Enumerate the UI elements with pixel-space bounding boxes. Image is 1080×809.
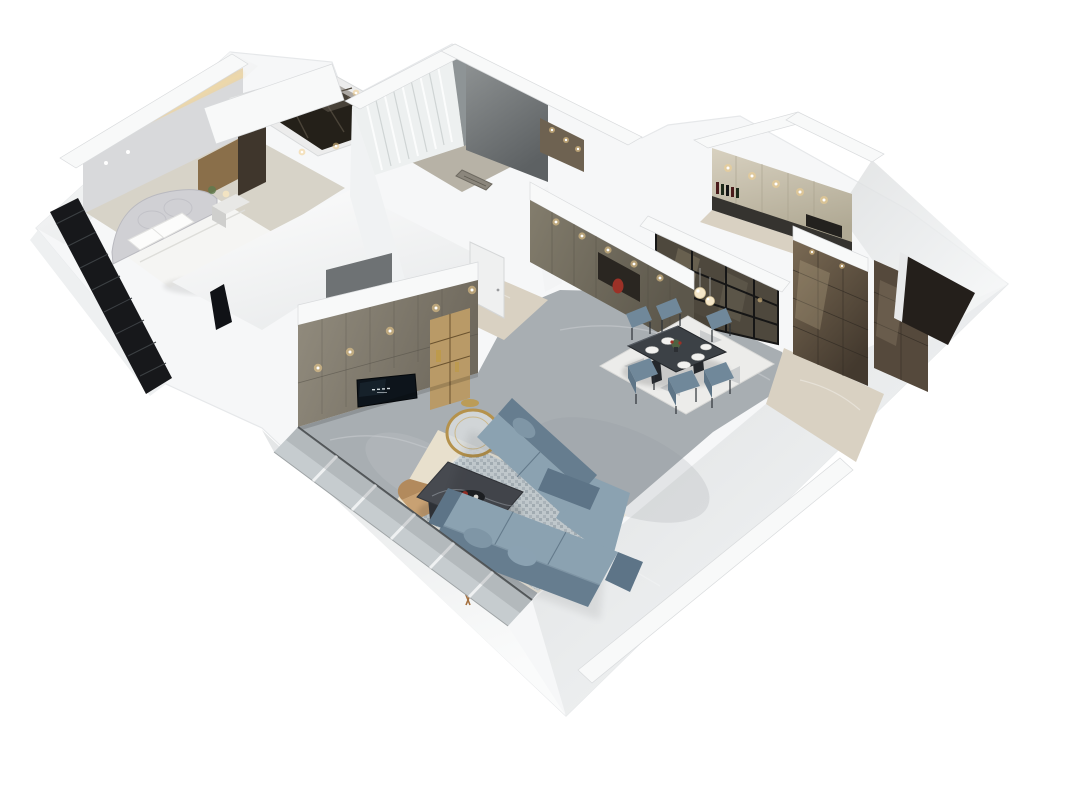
ceiling-spotlight bbox=[104, 161, 108, 165]
cabinet-spotlight-core bbox=[841, 265, 843, 267]
apartment-render-page bbox=[0, 0, 1080, 809]
plant bbox=[208, 186, 216, 194]
gold-dish bbox=[461, 399, 479, 407]
cabinet-spotlight-core bbox=[811, 251, 813, 253]
floorplan-render bbox=[0, 0, 1080, 809]
door-handle bbox=[497, 289, 500, 292]
red-vase bbox=[613, 279, 624, 294]
ceiling-spotlight bbox=[126, 150, 130, 154]
table-lamp bbox=[223, 191, 230, 198]
glass-light-reflection bbox=[758, 298, 763, 303]
gold-decor bbox=[455, 362, 459, 372]
gold-decor bbox=[436, 350, 441, 362]
